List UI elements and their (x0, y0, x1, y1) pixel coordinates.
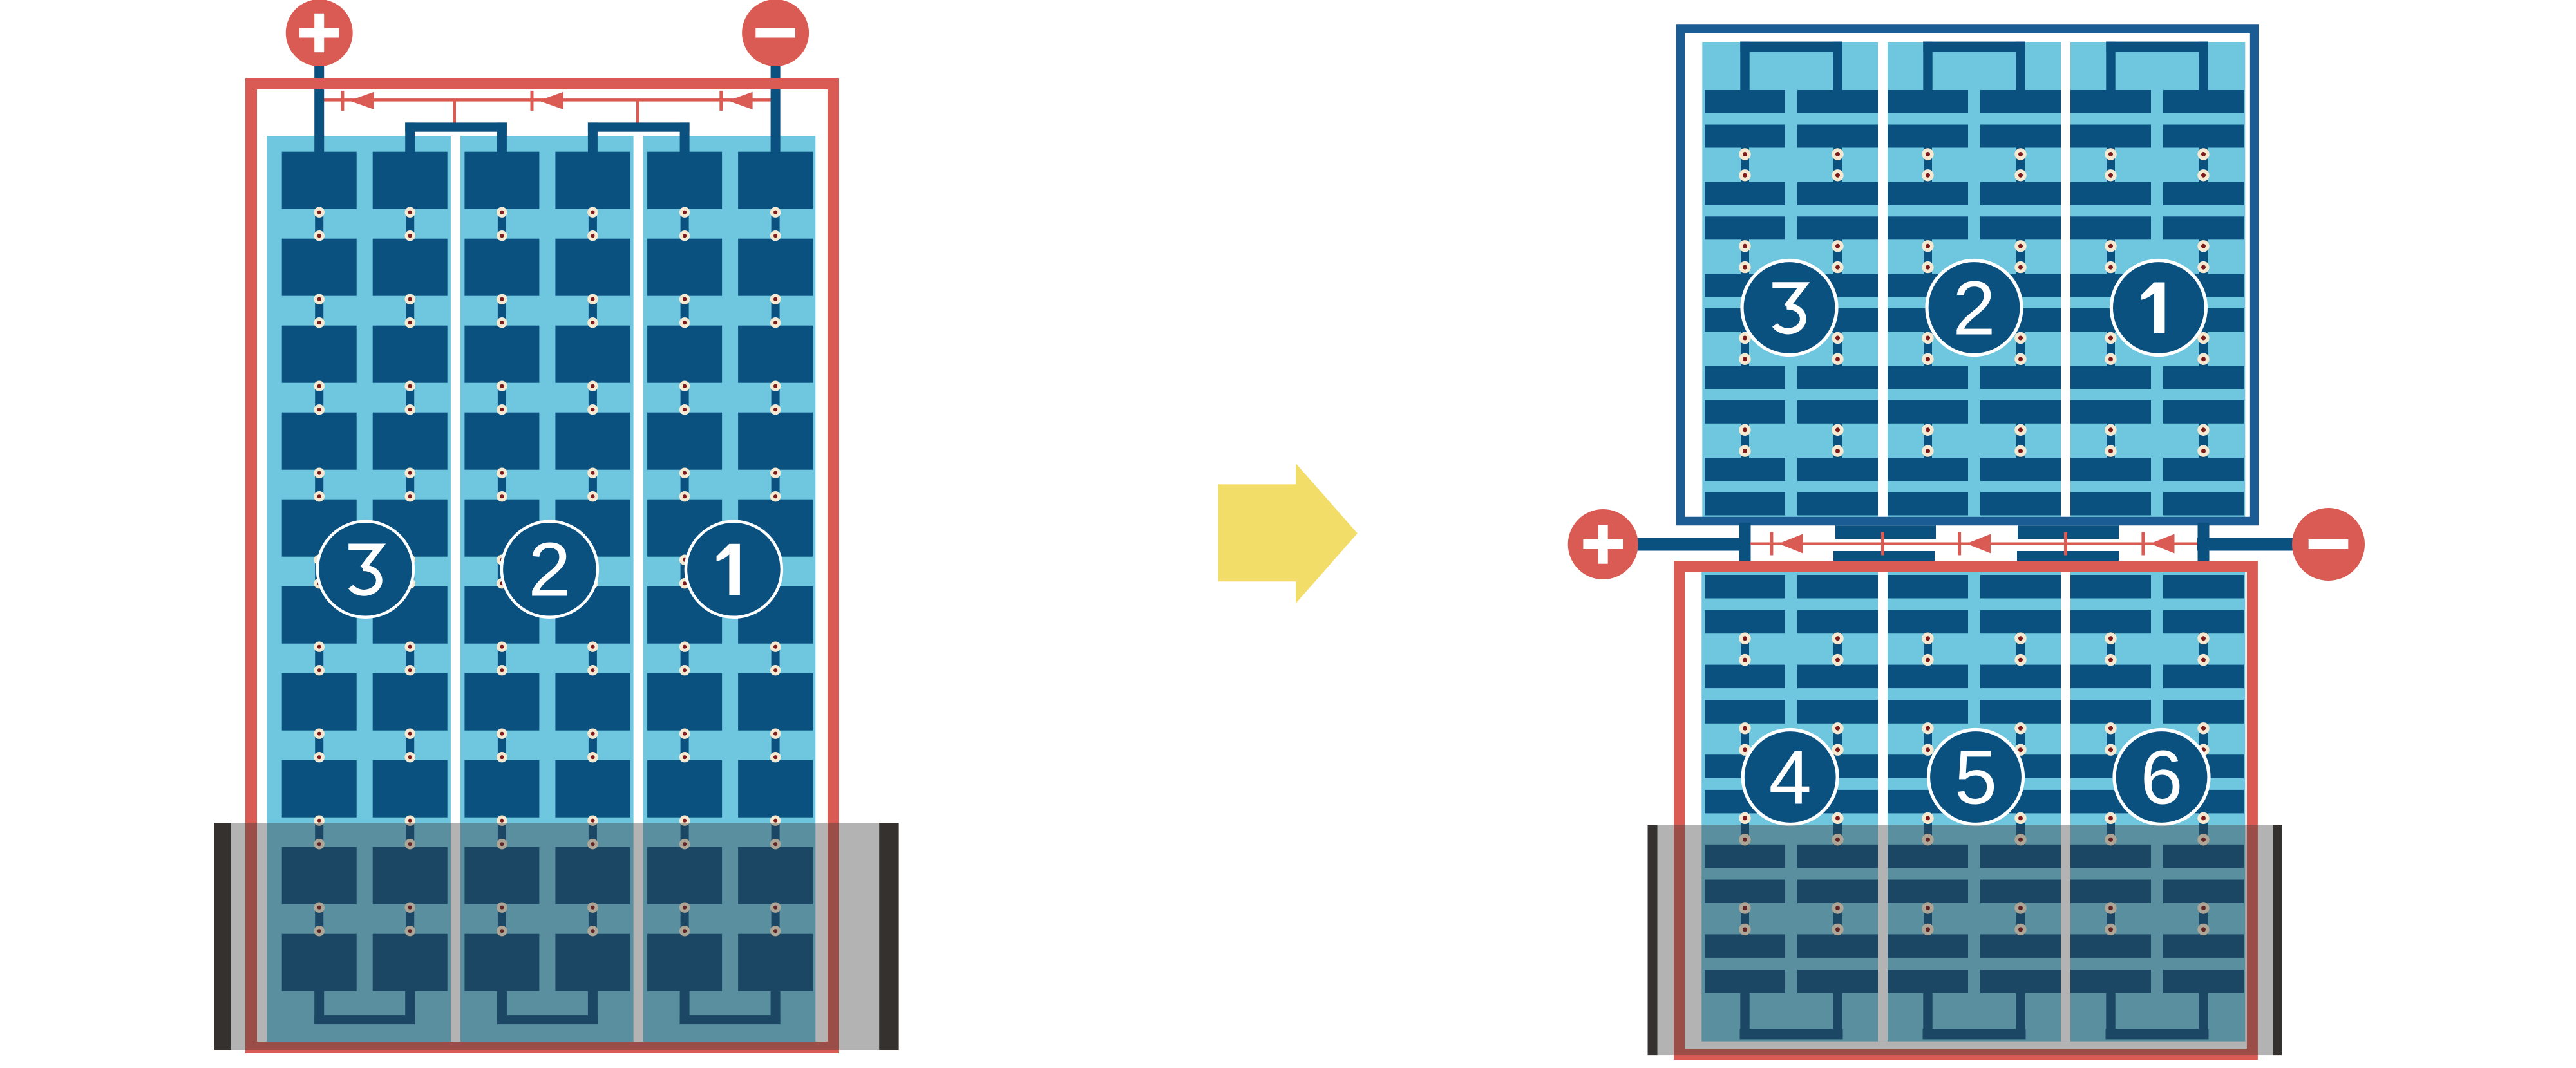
svg-text:4: 4 (1769, 735, 1812, 821)
svg-text:5: 5 (1955, 735, 1997, 821)
svg-text:2: 2 (1953, 266, 1995, 351)
svg-text:2: 2 (528, 527, 571, 613)
svg-text:6: 6 (2140, 735, 2183, 821)
